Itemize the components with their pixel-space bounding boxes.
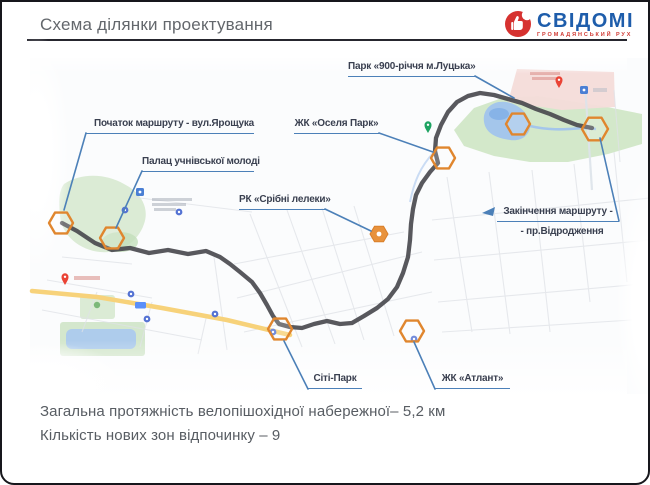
slide: Схема ділянки проектування СВІДОМІ ГРОМА… <box>0 0 650 485</box>
callout-route-end-line2: - пр.Відродження <box>507 225 617 238</box>
callout-sribni-leleky: РК «Срібні лелеки» <box>239 193 325 210</box>
marker-park900-hexagon <box>506 114 530 135</box>
marker-oselia-hexagon <box>431 148 455 169</box>
callout-youth-palace: Палац учнівської молоді <box>142 155 254 172</box>
callout-route-start: Початок маршруту - вул.Ярощука <box>86 117 254 134</box>
marker-atlant-hexagon <box>400 321 424 342</box>
summary-zones: Кількість нових зон відпочинку – 9 <box>40 424 445 448</box>
school-icon <box>136 188 144 196</box>
callout-oselia-park: ЖК «Оселя Парк» <box>294 117 379 134</box>
callout-route-end: Закінчення маршруту - <box>497 205 619 222</box>
med-icon <box>580 86 588 94</box>
marker-citypark-hexagon <box>268 319 292 340</box>
marker-start-hexagon <box>49 213 73 234</box>
callout-park-900: Парк «900-річчя м.Луцька» <box>348 60 475 77</box>
marker-palace-hexagon <box>100 228 124 249</box>
road-shield-icon <box>135 302 146 309</box>
callout-city-park: Сіті-Парк <box>308 372 362 389</box>
summary-length: Загальна протяжність велопішохідної набе… <box>40 400 445 424</box>
callout-atlant: ЖК «Атлант» <box>435 372 510 389</box>
marker-end-hexagon <box>582 118 608 141</box>
tree-icon <box>94 302 100 308</box>
summary-block: Загальна протяжність велопішохідної набе… <box>40 400 445 448</box>
marker-leleky-hexagon <box>370 226 388 242</box>
